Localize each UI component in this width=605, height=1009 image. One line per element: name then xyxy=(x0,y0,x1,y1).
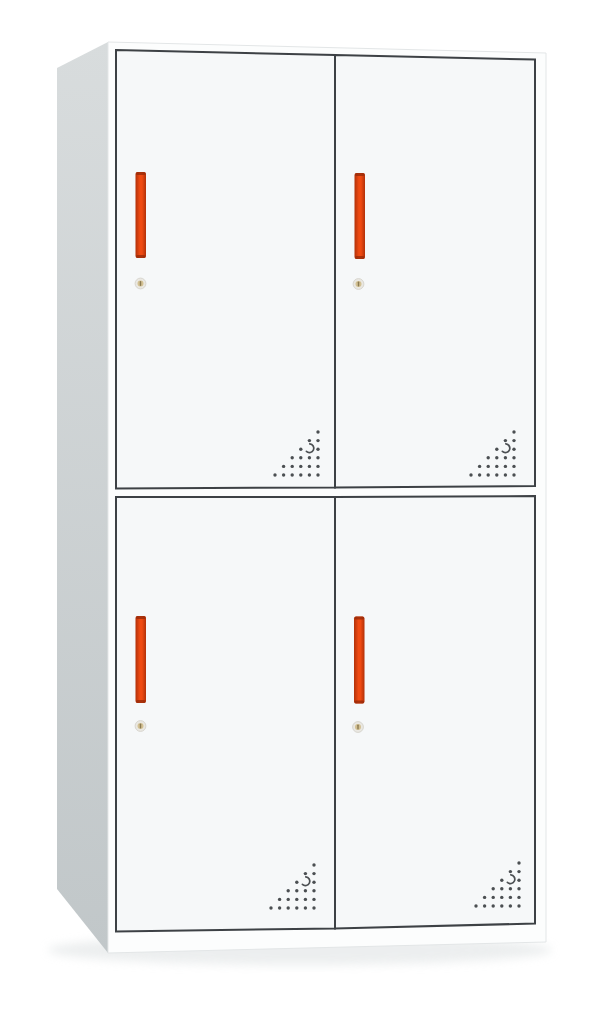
cam-lock-upper-left xyxy=(135,278,146,289)
door-handle-lower-right xyxy=(354,617,365,704)
door-handle-lower-left xyxy=(136,616,147,703)
door-lower-right xyxy=(335,496,535,929)
product-photo xyxy=(0,0,605,1009)
door-handle-upper-right xyxy=(355,173,366,259)
cabinet-side-panel xyxy=(57,42,108,953)
door-handle-upper-left xyxy=(136,172,147,258)
cam-lock-lower-right xyxy=(353,722,364,733)
door-upper-left xyxy=(116,50,335,489)
door-lower-left xyxy=(116,497,335,932)
cam-lock-upper-right xyxy=(353,279,364,290)
cam-lock-lower-left xyxy=(135,721,146,732)
door-upper-right xyxy=(335,55,535,488)
locker-cabinet-illustration xyxy=(0,0,605,1009)
